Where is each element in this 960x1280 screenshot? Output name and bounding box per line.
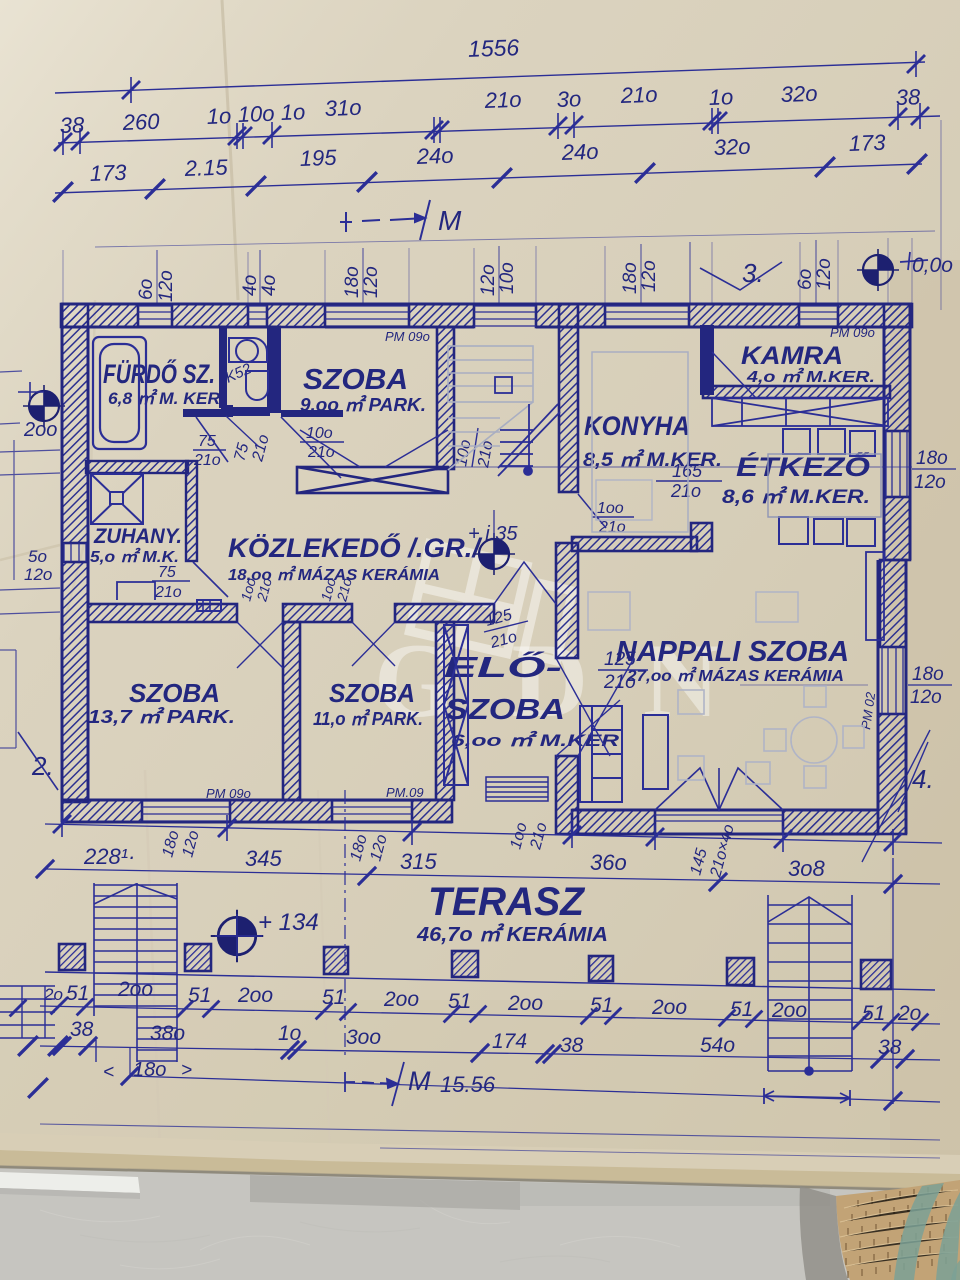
svg-text:2oo: 2oo xyxy=(237,984,273,1007)
svg-text:345: 345 xyxy=(245,846,282,871)
svg-text:TERASZ: TERASZ xyxy=(428,880,586,924)
svg-text:4o: 4o xyxy=(240,275,261,296)
svg-text:38: 38 xyxy=(878,1036,902,1059)
svg-text:12o: 12o xyxy=(910,687,942,708)
svg-text:12o: 12o xyxy=(814,258,835,290)
svg-text:2o: 2o xyxy=(897,1002,922,1025)
svg-text:KONYHA: KONYHA xyxy=(584,411,690,441)
svg-text:2oo: 2oo xyxy=(23,419,57,441)
svg-text:36o: 36o xyxy=(590,850,627,875)
svg-text:51: 51 xyxy=(590,994,613,1017)
svg-text:2oo: 2oo xyxy=(651,996,687,1019)
svg-text:SZOBA: SZOBA xyxy=(303,364,408,396)
svg-text:FÜRDŐ SZ.: FÜRDŐ SZ. xyxy=(103,358,215,389)
svg-text:46,7o ㎡ KERÁMIA: 46,7o ㎡ KERÁMIA xyxy=(416,923,608,946)
svg-text:12o: 12o xyxy=(361,266,382,298)
svg-text:M: M xyxy=(438,205,462,236)
svg-text:5o: 5o xyxy=(28,547,47,566)
svg-text:1o: 1o xyxy=(278,1022,302,1045)
svg-text:3o: 3o xyxy=(556,86,581,112)
svg-text:18o: 18o xyxy=(916,448,948,469)
svg-text:3o8: 3o8 xyxy=(788,856,825,881)
svg-text:+ i.35: + i.35 xyxy=(468,523,518,545)
svg-text:260: 260 xyxy=(121,109,160,135)
svg-text:21o: 21o xyxy=(193,452,221,469)
svg-text:125: 125 xyxy=(604,649,636,670)
svg-text:2.15: 2.15 xyxy=(183,154,228,181)
svg-text:KÖZLEKEDŐ /.GR./: KÖZLEKEDŐ /.GR./ xyxy=(228,532,483,563)
svg-text:38: 38 xyxy=(70,1018,94,1041)
svg-text:1o: 1o xyxy=(280,99,305,125)
svg-text:174: 174 xyxy=(492,1030,527,1053)
svg-text:51: 51 xyxy=(448,990,471,1013)
svg-text:173: 173 xyxy=(848,130,886,156)
svg-text:NAPPALI SZOBA: NAPPALI SZOBA xyxy=(616,636,849,668)
svg-text:75: 75 xyxy=(158,564,176,581)
svg-text:PM.09: PM.09 xyxy=(386,785,424,800)
svg-text:4o: 4o xyxy=(259,275,280,296)
svg-text:1556: 1556 xyxy=(468,34,520,62)
svg-text:12o: 12o xyxy=(156,270,177,302)
svg-text:2oo: 2oo xyxy=(117,978,153,1001)
svg-text:ZUHANY.: ZUHANY. xyxy=(93,525,182,548)
svg-text:173: 173 xyxy=(89,160,127,186)
svg-text:51: 51 xyxy=(322,986,345,1009)
svg-text:54o: 54o xyxy=(700,1034,735,1057)
svg-text:PM 09o: PM 09o xyxy=(206,786,251,801)
svg-text:PM 09o: PM 09o xyxy=(385,329,430,344)
svg-text:21o: 21o xyxy=(154,584,182,601)
svg-text:18o: 18o xyxy=(620,262,641,294)
svg-text:13,7 ㎡ PARK.: 13,7 ㎡ PARK. xyxy=(88,706,235,727)
svg-text:51: 51 xyxy=(188,984,211,1007)
svg-text:10o: 10o xyxy=(497,262,518,294)
svg-text:6,oo ㎡ M.KER: 6,oo ㎡ M.KER xyxy=(451,730,620,750)
svg-text:KAMRA: KAMRA xyxy=(741,342,843,370)
svg-text:SZOBA: SZOBA xyxy=(329,678,415,708)
svg-text:4.: 4. xyxy=(912,764,934,794)
svg-text:2oo: 2oo xyxy=(507,992,543,1015)
svg-text:38: 38 xyxy=(560,1034,584,1057)
svg-text:228¹·: 228¹· xyxy=(83,844,135,869)
svg-text:9,oo ㎡ PARK.: 9,oo ㎡ PARK. xyxy=(300,394,426,415)
svg-text:51: 51 xyxy=(730,998,753,1021)
svg-text:32o: 32o xyxy=(780,81,818,107)
svg-text:M: M xyxy=(408,1066,431,1096)
svg-text:PM 09o: PM 09o xyxy=(830,325,875,340)
svg-text:3oo: 3oo xyxy=(346,1026,381,1049)
svg-text:32o: 32o xyxy=(713,134,751,160)
svg-text:10o: 10o xyxy=(306,425,333,442)
svg-text:12o: 12o xyxy=(639,260,660,292)
svg-text:<: < xyxy=(103,1062,114,1083)
svg-text:51: 51 xyxy=(862,1002,885,1025)
svg-text:SZOBA: SZOBA xyxy=(129,678,220,708)
svg-text:51: 51 xyxy=(66,982,89,1005)
svg-text:0,0o: 0,0o xyxy=(912,254,953,277)
svg-text:ELŐ-: ELŐ- xyxy=(444,650,562,684)
svg-text:4,o ㎡ M.KER.: 4,o ㎡ M.KER. xyxy=(746,367,875,386)
svg-text:10o: 10o xyxy=(237,101,275,127)
svg-text:27,oo ㎡ MÁZAS KERÁMIA: 27,oo ㎡ MÁZAS KERÁMIA xyxy=(626,666,844,685)
svg-text:195: 195 xyxy=(299,145,337,171)
svg-text:38: 38 xyxy=(895,84,921,110)
svg-text:1o: 1o xyxy=(206,103,231,129)
svg-text:>: > xyxy=(181,1060,192,1081)
svg-text:18o: 18o xyxy=(133,1059,166,1081)
svg-text:38: 38 xyxy=(59,112,85,138)
svg-text:6o: 6o xyxy=(136,279,157,300)
svg-text:38o: 38o xyxy=(150,1022,185,1045)
svg-text:21o: 21o xyxy=(670,481,701,501)
svg-text:1oo: 1oo xyxy=(597,500,624,517)
svg-text:21o: 21o xyxy=(619,82,658,108)
svg-text:31o: 31o xyxy=(324,95,362,121)
svg-text:24o: 24o xyxy=(560,139,599,165)
svg-text:2o: 2o xyxy=(43,985,63,1004)
svg-text:+ 134: + 134 xyxy=(258,909,319,936)
svg-text:11,o ㎡ PARK.: 11,o ㎡ PARK. xyxy=(313,708,423,729)
svg-text:315: 315 xyxy=(400,849,437,874)
svg-text:18o: 18o xyxy=(342,266,363,298)
svg-text:15.56: 15.56 xyxy=(440,1072,496,1097)
svg-text:24o: 24o xyxy=(415,143,454,169)
svg-text:21o: 21o xyxy=(483,87,522,113)
svg-text:12o: 12o xyxy=(24,565,52,584)
svg-text:6,8 ㎡ M. KER: 6,8 ㎡ M. KER xyxy=(108,388,221,408)
svg-text:12o: 12o xyxy=(478,264,499,296)
svg-text:8,6 ㎡ M.KER.: 8,6 ㎡ M.KER. xyxy=(722,486,870,508)
svg-text:2oo: 2oo xyxy=(383,988,419,1011)
svg-text:18o: 18o xyxy=(912,664,944,685)
svg-text:1o: 1o xyxy=(708,84,733,110)
svg-text:21o: 21o xyxy=(598,519,626,536)
svg-text:6o: 6o xyxy=(795,269,816,290)
svg-text:12o: 12o xyxy=(914,472,946,493)
svg-text:2oo: 2oo xyxy=(771,999,807,1022)
svg-text:3.: 3. xyxy=(742,258,764,288)
